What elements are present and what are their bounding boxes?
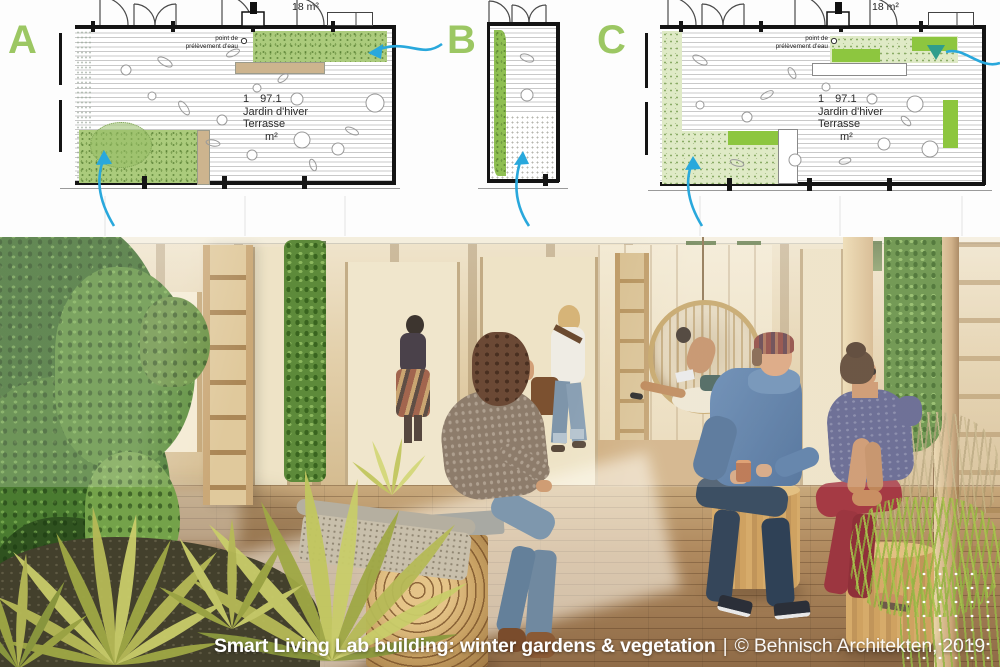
room-unit: m² bbox=[243, 131, 308, 144]
plan-b-wall-top bbox=[487, 22, 559, 26]
plan-a-area-label: 18 m² bbox=[292, 1, 319, 13]
jeans-shin bbox=[761, 517, 795, 607]
plan-c-label: C bbox=[597, 20, 626, 60]
plan-b-wall-left bbox=[487, 22, 490, 182]
plan-a-room-text: 1 97.1 Jardin d'hiver Terrasse m² bbox=[243, 93, 308, 143]
plan-a-wall-right bbox=[392, 25, 396, 185]
plan-c-bench-side bbox=[778, 129, 798, 184]
glass-sheen-overlay bbox=[0, 237, 1000, 487]
caption: Smart Living Lab building: winter garden… bbox=[214, 635, 985, 658]
plan-a-planting-top bbox=[253, 31, 387, 62]
plan-c-green-box-2 bbox=[912, 37, 957, 51]
plan-c-wall-left-upper bbox=[645, 33, 648, 88]
plan-c-terrace-edge bbox=[648, 190, 992, 191]
plan-c-water-point-label: point de prélèvement d'eau bbox=[758, 35, 828, 50]
plan-c-bench-top bbox=[812, 63, 907, 76]
plan-c-room-text: 1 97.1 Jardin d'hiver Terrasse m² bbox=[818, 93, 883, 143]
plan-a-wall-left-upper bbox=[59, 33, 62, 85]
room-type: Terrasse bbox=[243, 118, 308, 131]
water-point-line1: point de bbox=[168, 35, 238, 43]
room-name: Jardin d'hiver bbox=[243, 106, 308, 119]
plan-b-label: B bbox=[447, 20, 476, 60]
room-type: Terrasse bbox=[818, 118, 883, 131]
water-point-line2: prélèvement d'eau bbox=[758, 43, 828, 51]
room-number: 1 97.1 bbox=[818, 93, 883, 106]
plan-b-wall-right bbox=[556, 22, 560, 182]
plan-b-planting-strip bbox=[494, 30, 506, 176]
room-number: 1 97.1 bbox=[243, 93, 308, 106]
plan-c-area-label: 18 m² bbox=[872, 1, 899, 13]
plan-a-shrub bbox=[90, 122, 152, 168]
room-unit: m² bbox=[818, 131, 883, 144]
plan-c-green-box-3 bbox=[728, 131, 778, 145]
plan-c-green-box-1 bbox=[832, 49, 880, 62]
water-point-line2: prélèvement d'eau bbox=[168, 43, 238, 51]
architecture-slide: A B C 18 m² point de prélèvement d'eau 1… bbox=[0, 0, 1000, 667]
room-name: Jardin d'hiver bbox=[818, 106, 883, 119]
floor-plans-section: A B C 18 m² point de prélèvement d'eau 1… bbox=[0, 0, 1000, 237]
plan-c-green-bar-right bbox=[943, 100, 958, 148]
plan-a-wall-left-lower bbox=[59, 100, 62, 152]
plan-c-sofa bbox=[928, 12, 974, 26]
water-point-line1: point de bbox=[758, 35, 828, 43]
plan-a-sofa bbox=[327, 12, 373, 26]
plan-c-wall-left-lower bbox=[645, 102, 648, 155]
caption-title: Smart Living Lab building: winter garden… bbox=[214, 635, 716, 657]
caption-separator: | bbox=[716, 635, 735, 657]
jeans-shin bbox=[705, 509, 740, 603]
winter-garden-rendering: Smart Living Lab building: winter garden… bbox=[0, 237, 1000, 667]
plan-a-bench-top bbox=[235, 62, 325, 74]
plan-c-edge-planting bbox=[662, 31, 682, 131]
plan-b-wall-bottom bbox=[487, 179, 559, 183]
plan-a-label: A bbox=[8, 20, 37, 60]
plan-a-bench-side bbox=[197, 130, 210, 185]
plan-a-terrace-edge bbox=[60, 188, 400, 189]
sneaker bbox=[773, 600, 810, 620]
plan-b-terrace-edge bbox=[478, 188, 568, 189]
plan-a-water-point-label: point de prélèvement d'eau bbox=[168, 35, 238, 50]
plan-c-wall-right bbox=[982, 25, 986, 185]
construction-grid bbox=[105, 196, 962, 236]
sneaker bbox=[717, 594, 754, 618]
caption-credit: © Behnisch Architekten, 2019 bbox=[734, 635, 985, 657]
